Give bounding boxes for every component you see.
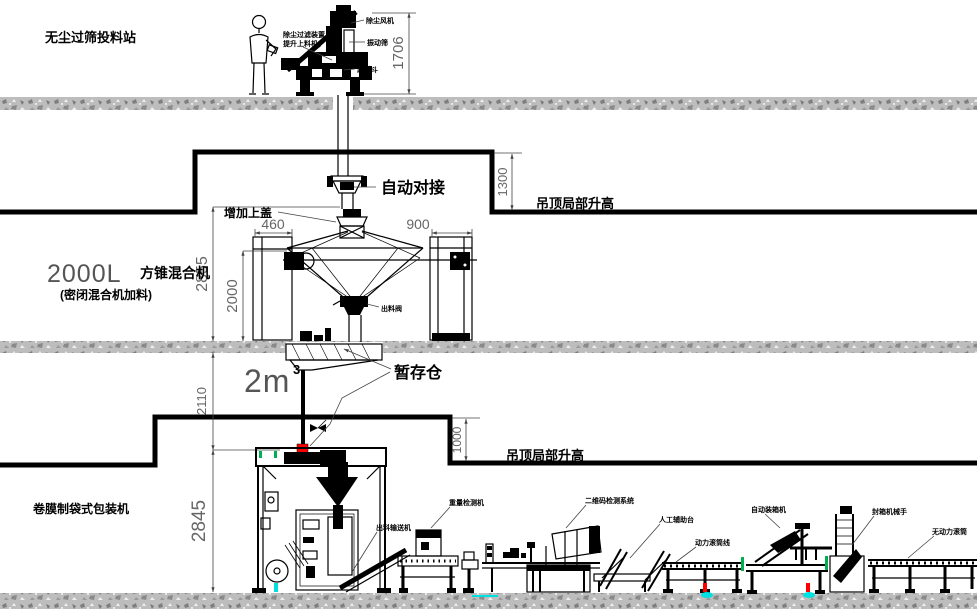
dim-interfloor-drop: 2110 [194,353,213,450]
ceiling-note-lower: 吊顶局部升高 [506,448,584,463]
svg-text:2845: 2845 [189,500,210,542]
floor-slab-middle [0,341,977,353]
feeding-station-machine [281,5,372,96]
station-callout-r2: 振动筛 [367,38,388,47]
case-sealing-robot [830,506,864,592]
film-mark-cyan [274,583,278,592]
dim-station-height: 1706 [364,13,416,94]
power-roller-label: 动力滚筒线 [695,538,730,547]
free-roller-label: 无动力滚筒 [931,527,967,536]
slab-opening-top [333,96,353,110]
station-callout-r3: 卸料斗 [357,65,378,74]
mixer-sub-label: (密闭混合机加料) [60,287,152,302]
case-robot-label: 封箱机械手 [872,507,907,516]
buffer-bin [286,344,382,453]
slide-chute-1 [600,549,627,589]
manual-table-label: 人工辅助台 [659,515,694,524]
discharge-valve-label: 出料阀 [381,304,402,313]
case-packer-label: 自动装箱机 [751,505,786,514]
svg-text:900: 900 [406,216,430,232]
buffer-bin-label: 暂存仓 [394,363,443,382]
case-packer [746,523,832,598]
mixer-feed-head [337,209,367,238]
station-callout-left-2: 提升上料机 [282,39,318,48]
incline-conveyor [340,550,406,588]
svg-text:2000: 2000 [224,279,241,312]
sensor-green [825,556,828,570]
powered-roller-conveyor [662,557,744,598]
packer-title: 卷膜制袋式包装机 [32,501,129,516]
drawing-svg: 除尘过滤装置 提升上料机 除尘风机 振动筛 卸料斗 无尘过筛投料站 1706 自… [0,0,977,609]
station-callout-left-1: 除尘过滤装置 [283,30,325,39]
vacuum-unit [300,328,331,341]
dim-ceiling-raise-lower: 1000 [450,418,480,461]
checkweigher-label: 重量检测机 [449,498,484,507]
raised-ceiling-upper [0,152,977,212]
svg-text:2110: 2110 [194,387,209,415]
raised-ceiling-lower [0,417,977,465]
svg-text:1706: 1706 [390,36,407,69]
ceiling-note-upper: 吊顶局部升高 [536,196,614,211]
station-callout-r1: 除尘风机 [366,16,394,25]
outfeed-label: 出料输送机 [376,523,411,532]
square-cone-mixer [283,231,477,303]
auto-dock-label: 自动对接 [381,178,445,197]
dim-right-cabinet: 900 [406,216,472,237]
dim-left-cabinet: 460 [255,216,292,237]
mixer-name-label: 方锥混合机 [140,265,210,281]
dim-ceiling-raise-upper: 1300 [494,153,522,210]
bin-volume: 2m [244,363,290,399]
bin-volume-exp: 3 [293,362,300,377]
floor-mark-cyan [701,592,713,598]
floor-mark-cyan [803,592,815,598]
svg-text:1000: 1000 [450,426,464,453]
mixer-size-label: 2000L [47,260,122,288]
station-title: 无尘过筛投料站 [44,30,136,45]
factory-section-drawing: 除尘过滤装置 提升上料机 除尘风机 振动筛 卸料斗 无尘过筛投料站 1706 自… [0,0,977,609]
qr-inspection-station [527,526,601,592]
slide-chute-2 [642,551,670,591]
gravity-roller-conveyor [868,560,977,593]
leg-mark-red [806,583,810,592]
operator-figure [249,16,278,95]
qr-system-label: 二维码检测系统 [585,496,634,505]
dim-mixer-height: 2000 [224,251,287,341]
frame-sensor-green [259,451,262,458]
floor-slab-top [0,97,977,110]
transfer-pedestal [462,552,478,593]
frame-sensor-green [274,451,277,458]
discharge-valve [333,296,368,343]
checkweigher [398,530,458,593]
svg-text:1300: 1300 [495,168,510,197]
vffs-packaging-machine [252,448,410,593]
leg-mark-red [703,583,707,592]
auto-docking-device [327,176,367,209]
conveyor-sensor-green [741,557,744,571]
svg-text:460: 460 [261,216,285,232]
